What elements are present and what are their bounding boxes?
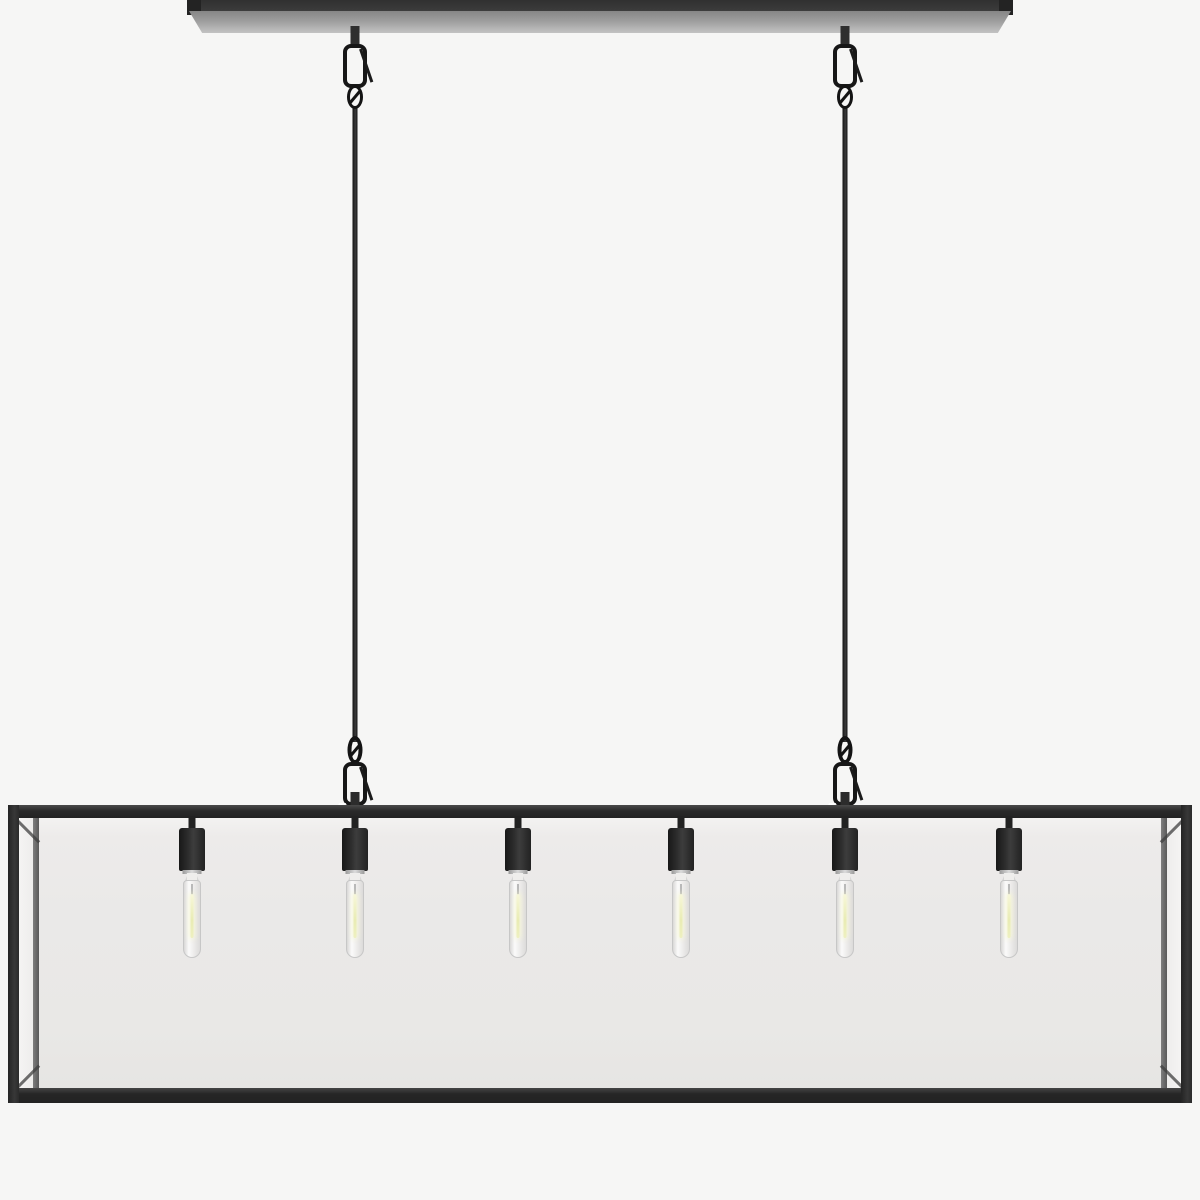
lamp-socket [342,828,368,871]
suspension-cable-assembly [830,30,860,820]
tubular-bulb [346,880,364,958]
canopy-mount-stem [841,26,850,46]
tubular-bulb [1000,880,1018,958]
bulb-filament [680,894,683,938]
bulb-assembly [177,818,207,978]
swivel-twist [839,90,852,104]
lamp-socket [996,828,1022,871]
tubular-bulb [836,880,854,958]
ceiling-canopy [187,0,1013,36]
frame-right-stile [1181,805,1192,1103]
loop-twist [349,743,362,757]
canopy-bottom-bevel [189,11,1011,33]
carabiner-gate [849,767,863,801]
lamp-socket [505,828,531,871]
bulb-assembly [503,818,533,978]
bulb-filament [1008,894,1011,938]
cable-end-loop [838,736,853,764]
bulb-filament [844,894,847,938]
frame-top-rail [8,805,1192,818]
cable-end-loop [348,736,363,764]
cable-rod [843,106,848,742]
back-corner-post-left [33,818,39,1088]
lamp-socket [179,828,205,871]
product-render-scene [0,0,1200,1200]
bulb-assembly [666,818,696,978]
bulb-filament [354,894,357,938]
top-carabiner-hook [833,44,857,88]
frame-bottom-rail [8,1088,1192,1103]
swivel-loop [347,85,363,109]
frame-left-stile [8,805,19,1103]
tubular-bulb [672,880,690,958]
bulb-assembly [994,818,1024,978]
top-carabiner-hook [343,44,367,88]
cable-rod [353,106,358,742]
bulb-filament [191,894,194,938]
glass-edge-highlight-right [1167,818,1181,1088]
carabiner-gate [849,49,863,83]
bulb-assembly [340,818,370,978]
swivel-loop [837,85,853,109]
tubular-bulb [509,880,527,958]
canopy-bar [187,0,1013,11]
carabiner-gate [359,49,373,83]
glass-edge-highlight-left [19,818,33,1088]
back-corner-post-right [1161,818,1167,1088]
lamp-socket [832,828,858,871]
loop-twist [839,743,852,757]
suspension-cable-assembly [340,30,370,820]
bulb-filament [517,894,520,938]
carabiner-gate [359,767,373,801]
canopy-mount-stem [351,26,360,46]
lamp-socket [668,828,694,871]
tubular-bulb [183,880,201,958]
swivel-twist [349,90,362,104]
bulb-assembly [830,818,860,978]
